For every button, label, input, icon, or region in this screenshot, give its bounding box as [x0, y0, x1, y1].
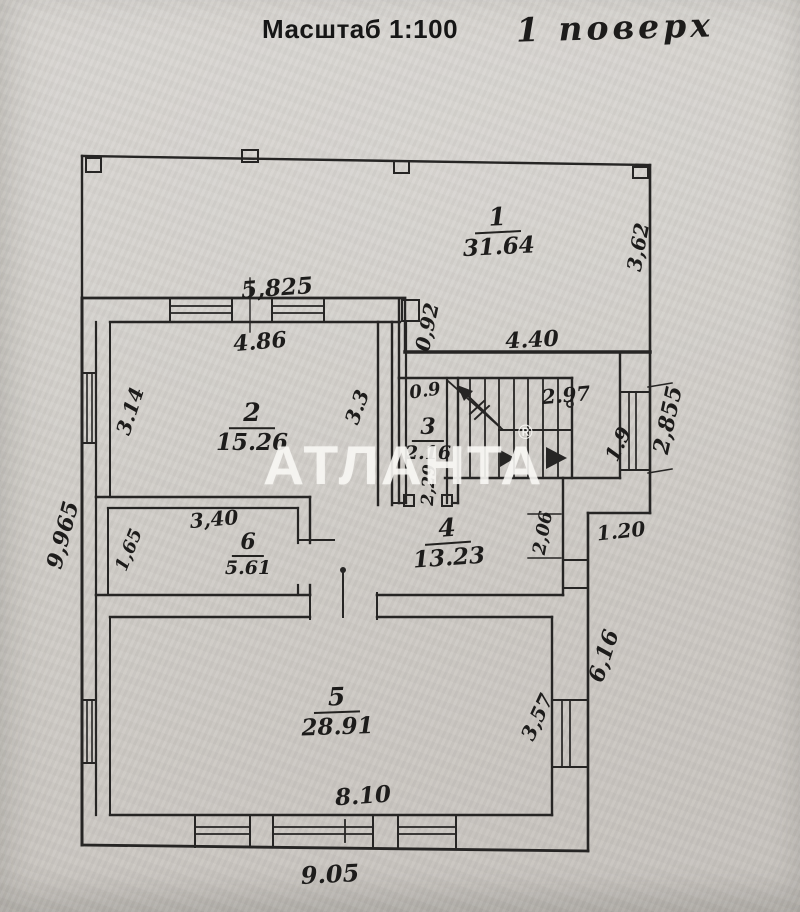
dim-room1-bottom-width: 4.40 — [505, 326, 560, 355]
room-area: 13.23 — [412, 543, 486, 573]
dim-top-section-width: 5,825 — [240, 272, 314, 304]
dimension-tick — [648, 469, 672, 473]
pillar — [242, 150, 258, 162]
room-number: 5 — [313, 683, 359, 714]
dim-room2-top-width: 4.86 — [232, 327, 288, 358]
window — [273, 815, 373, 847]
registered-trademark-icon: ® — [518, 422, 533, 445]
floor-plan-scan: Масштаб 1:100 1 поверх — [0, 0, 800, 912]
room-5-label: 5 28.91 — [300, 683, 374, 741]
stair-right-arrow-icon — [546, 447, 567, 469]
wall-pillars — [86, 150, 648, 321]
window — [170, 306, 324, 313]
outer-walls — [82, 156, 650, 851]
dim-bottom-total-width: 9.05 — [300, 858, 360, 890]
room-number: 1 — [474, 203, 521, 235]
dim-room3-top-width: 0.9 — [408, 378, 442, 403]
room-1-label: 1 31.64 — [461, 202, 536, 261]
watermark-brand: АТЛАНТА — [263, 434, 543, 497]
pillar — [394, 161, 409, 173]
window — [195, 815, 250, 847]
room-area: 31.64 — [462, 233, 535, 262]
floor-title: 1 поверх — [516, 5, 715, 49]
pillar — [633, 167, 648, 178]
room-number: 2 — [229, 400, 274, 429]
hall-room5-wall — [96, 567, 563, 619]
window — [552, 700, 588, 767]
room-4-label: 4 13.23 — [410, 513, 486, 573]
room-6-label: 6 5.61 — [225, 531, 271, 579]
room-area: 5.61 — [225, 558, 271, 579]
dim-room5-bottom-width: 8.10 — [334, 781, 392, 812]
scale-title: Масштаб 1:100 — [262, 14, 458, 45]
window — [82, 373, 96, 443]
room-number: 6 — [232, 531, 263, 557]
dim-room6-top-width: 3,40 — [189, 505, 240, 533]
room-number: 4 — [423, 514, 470, 546]
stair-direction-line — [463, 391, 500, 427]
window — [82, 700, 96, 763]
pillar — [86, 158, 101, 172]
window — [398, 815, 456, 847]
room-area: 28.91 — [301, 713, 374, 741]
dim-stair-top-width: 2.97 — [541, 381, 592, 409]
dim-right-step-width: 1.20 — [596, 517, 647, 546]
